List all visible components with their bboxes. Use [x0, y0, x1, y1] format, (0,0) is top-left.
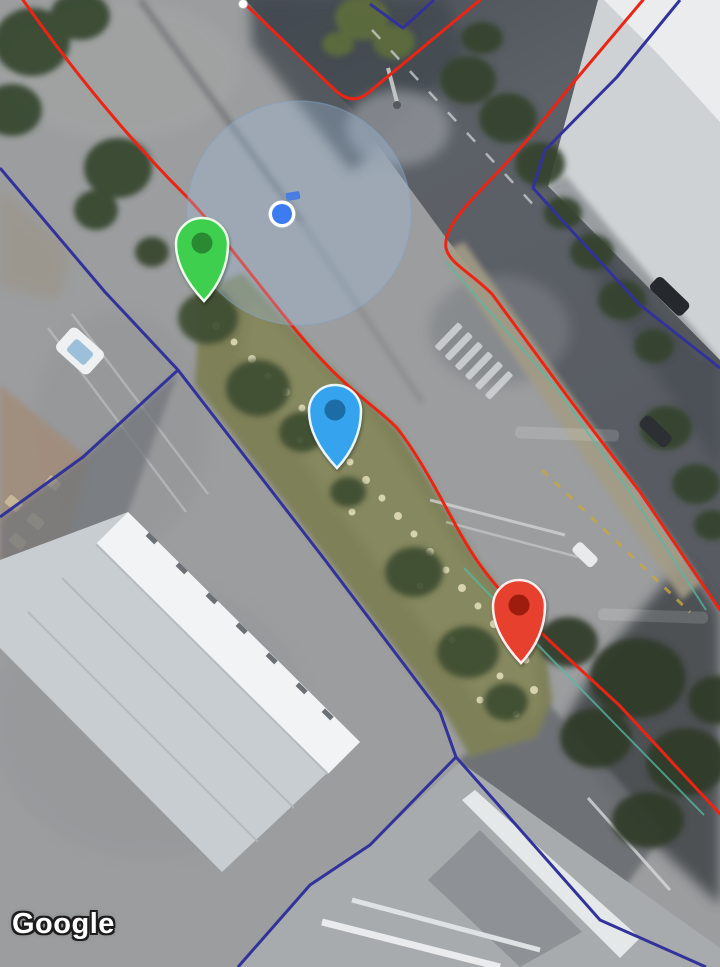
- green-marker-inner-dot: [192, 233, 213, 254]
- red-marker-inner-dot: [509, 595, 530, 616]
- satellite-canvas[interactable]: [0, 0, 720, 967]
- location-dot: [272, 204, 292, 224]
- map-viewport[interactable]: Google: [0, 0, 720, 967]
- accuracy-circle: [187, 101, 411, 325]
- red-boundary-vertex-dot: [239, 0, 248, 9]
- blue-marker-inner-dot: [325, 400, 346, 421]
- google-attribution-logo[interactable]: Google: [12, 908, 115, 941]
- location-indicator: [187, 101, 411, 325]
